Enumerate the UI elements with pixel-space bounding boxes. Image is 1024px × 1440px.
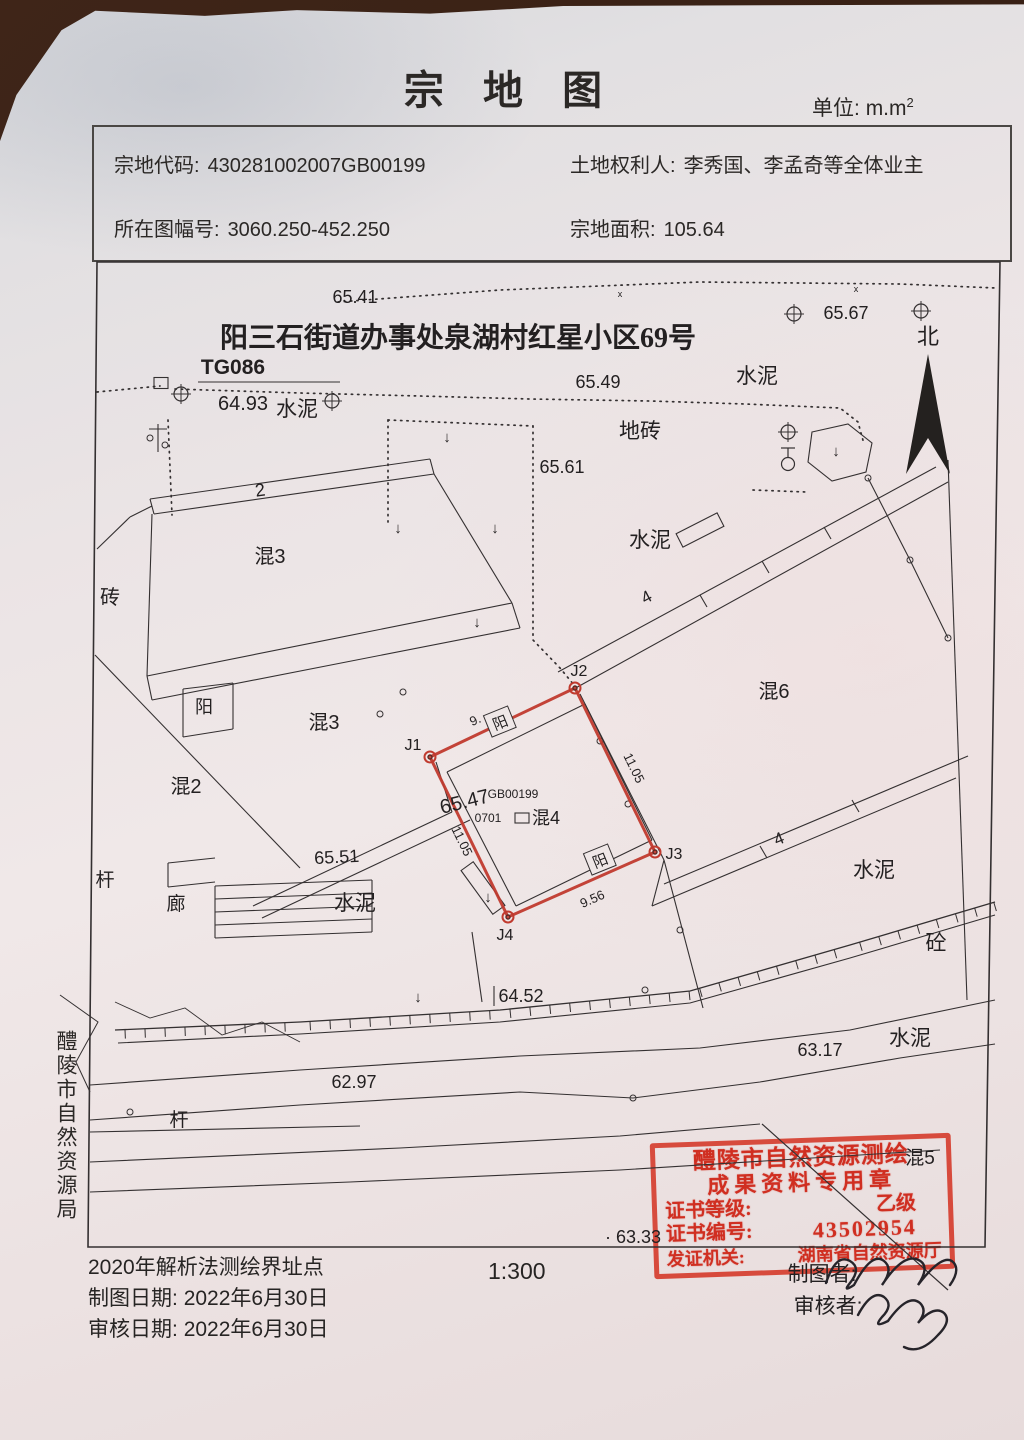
owner-value: 李秀国、李孟奇等全体业主: [684, 155, 924, 177]
parcel-code-label: 宗地代码:: [114, 155, 200, 177]
agency-vertical-label: 醴陵市自然资源局: [50, 1030, 80, 1250]
stamp-issuer-label: 发证机关:: [666, 1248, 745, 1269]
owner-label: 土地权利人:: [570, 155, 676, 177]
parcel-info-box: 宗地代码:430281002007GB00199 土地权利人:李秀国、李孟奇等全…: [92, 125, 1012, 262]
parcel-code-cell: 宗地代码:430281002007GB00199: [114, 149, 426, 178]
sheet-number-value: 3060.250-452.250: [228, 219, 390, 241]
parcel-area-value: 105.64: [664, 219, 725, 241]
unit-text: 单位:: [812, 97, 860, 120]
sheet-number-label: 所在图幅号:: [114, 219, 220, 241]
draw-date-value: 2022年6月30日: [184, 1287, 329, 1310]
sheet-number-cell: 所在图幅号:3060.250-452.250: [114, 213, 390, 242]
owner-cell: 土地权利人:李秀国、李孟奇等全体业主: [570, 149, 924, 178]
footer: 2020年解析法测绘界址点 制图日期: 2022年6月30日 审核日期: 202…: [88, 1252, 328, 1345]
draw-date-label: 制图日期:: [88, 1287, 178, 1310]
stamp-number-value: 43502954: [812, 1216, 917, 1242]
survey-method-line: 2020年解析法测绘界址点: [88, 1252, 328, 1283]
unit-superscript: 2: [907, 95, 914, 110]
stamp-grade-value: 乙级: [876, 1193, 917, 1215]
draw-date-line: 制图日期: 2022年6月30日: [88, 1283, 328, 1314]
stamp-grade-label: 证书等级:: [665, 1199, 752, 1222]
stamp-issuer-value: 湖南省自然资源厅: [797, 1241, 942, 1264]
unit-label: 单位: m.m2: [812, 92, 914, 122]
review-date-line: 审核日期: 2022年6月30日: [88, 1314, 328, 1345]
review-date-label: 审核日期:: [88, 1318, 178, 1341]
stamp-number-label: 证书编号:: [666, 1222, 753, 1247]
review-date-value: 2022年6月30日: [184, 1318, 329, 1341]
page-title: 宗 地 图: [300, 58, 720, 116]
parcel-area-cell: 宗地面积:105.64: [570, 213, 725, 242]
map-scale: 1:300: [488, 1258, 546, 1285]
parcel-code-value: 430281002007GB00199: [208, 155, 426, 177]
official-stamp: 醴陵市自然资源测绘 成果资料专用章 证书等级:乙级 证书编号:43502954 …: [650, 1133, 956, 1279]
unit-value: m.m: [866, 97, 907, 120]
parcel-area-label: 宗地面积:: [570, 219, 656, 241]
photo-background: 宗 地 图 单位: m.m2 宗地代码:430281002007GB00199 …: [0, 0, 1024, 1440]
